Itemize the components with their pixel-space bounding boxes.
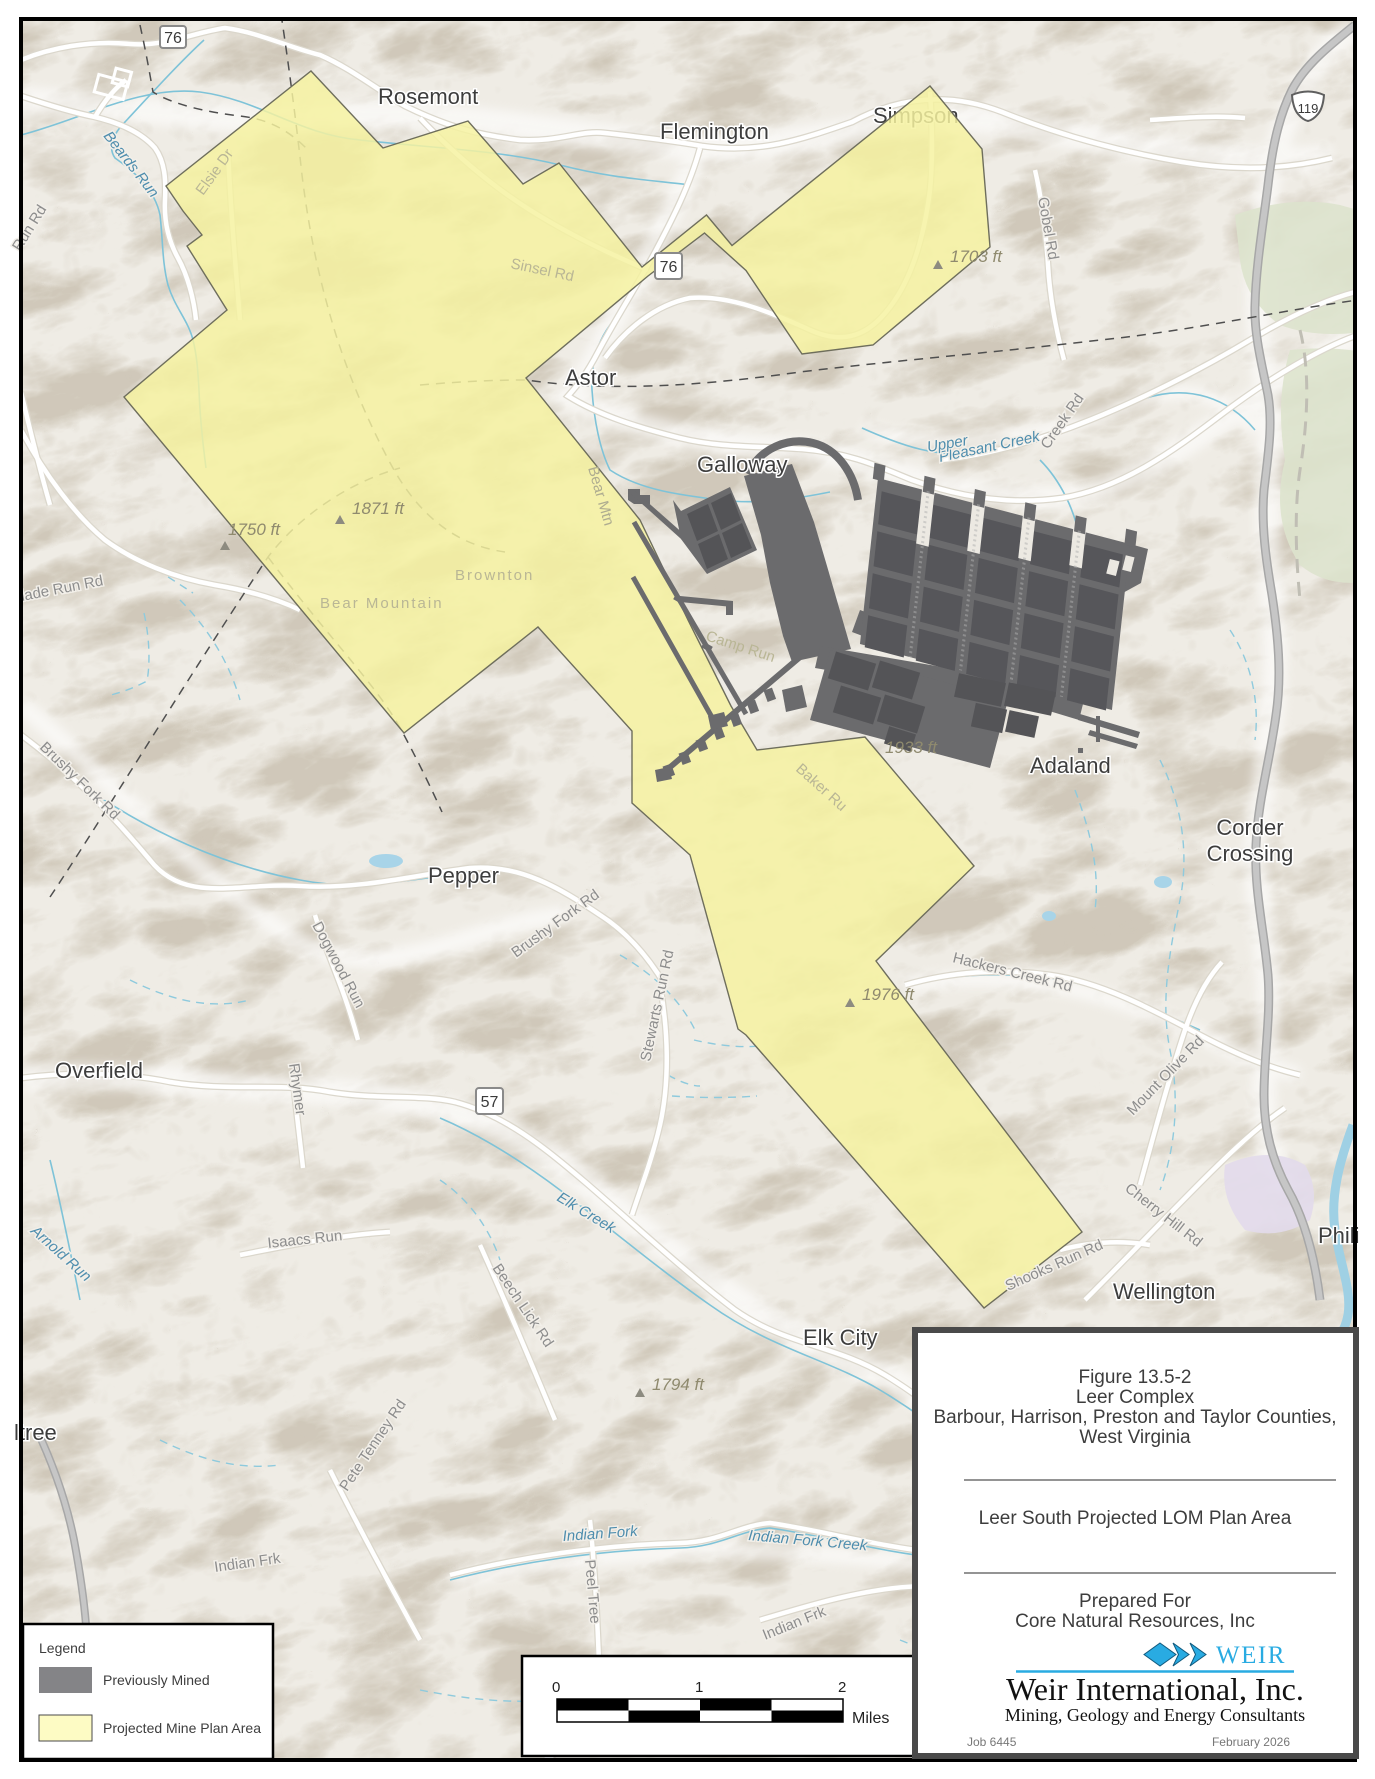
svg-text:1933 ft: 1933 ft [885, 738, 938, 757]
svg-text:Legend: Legend [39, 1640, 86, 1656]
svg-text:119: 119 [1298, 101, 1319, 116]
svg-text:Weir International, Inc.: Weir International, Inc. [1006, 1671, 1304, 1707]
svg-text:Corder: Corder [1216, 815, 1283, 840]
svg-text:Leer Complex: Leer Complex [1076, 1387, 1195, 1408]
svg-text:1703 ft: 1703 ft [950, 247, 1003, 266]
svg-text:Crossing: Crossing [1207, 841, 1294, 866]
svg-text:Miles: Miles [852, 1710, 889, 1727]
svg-text:Elk City: Elk City [803, 1325, 878, 1350]
svg-text:1871 ft: 1871 ft [352, 499, 405, 518]
svg-text:76: 76 [164, 30, 182, 47]
svg-text:WEIR: WEIR [1216, 1642, 1286, 1669]
svg-text:Adaland: Adaland [1030, 753, 1111, 778]
svg-text:1: 1 [695, 1679, 703, 1696]
svg-text:2: 2 [838, 1679, 846, 1696]
svg-text:Rosemont: Rosemont [378, 84, 478, 109]
svg-text:1750 ft: 1750 ft [228, 520, 281, 539]
svg-text:Job 6445: Job 6445 [967, 1735, 1017, 1749]
svg-text:57: 57 [481, 1094, 499, 1111]
svg-text:Figure 13.5-2: Figure 13.5-2 [1078, 1367, 1191, 1388]
svg-text:Prepared For: Prepared For [1079, 1591, 1192, 1612]
svg-text:1976 ft: 1976 ft [862, 985, 915, 1004]
svg-text:West Virginia: West Virginia [1079, 1427, 1191, 1448]
svg-text:1794 ft: 1794 ft [652, 1375, 705, 1394]
svg-text:Galloway: Galloway [697, 452, 787, 477]
svg-text:Mining, Geology and Energy Con: Mining, Geology and Energy Consultants [1005, 1705, 1305, 1725]
svg-text:Flemington: Flemington [660, 119, 769, 144]
svg-text:February 2026: February 2026 [1212, 1735, 1290, 1749]
svg-text:0: 0 [552, 1679, 560, 1696]
svg-text:Previously Mined: Previously Mined [103, 1672, 210, 1688]
svg-text:Projected Mine Plan Area: Projected Mine Plan Area [103, 1720, 261, 1736]
svg-text:Leer South Projected LOM Plan: Leer South Projected LOM Plan Area [979, 1508, 1292, 1529]
svg-text:76: 76 [660, 259, 678, 276]
svg-text:Astor: Astor [565, 365, 616, 390]
svg-text:Wellington: Wellington [1113, 1279, 1215, 1304]
svg-text:Bear Mountain: Bear Mountain [320, 595, 444, 612]
svg-text:Brownton: Brownton [455, 567, 534, 584]
svg-text:Barbour, Harrison, Preston and: Barbour, Harrison, Preston and Taylor Co… [933, 1407, 1336, 1428]
svg-text:Core Natural Resources, Inc: Core Natural Resources, Inc [1015, 1611, 1255, 1632]
svg-text:Overfield: Overfield [55, 1058, 143, 1083]
svg-text:Pepper: Pepper [428, 863, 499, 888]
